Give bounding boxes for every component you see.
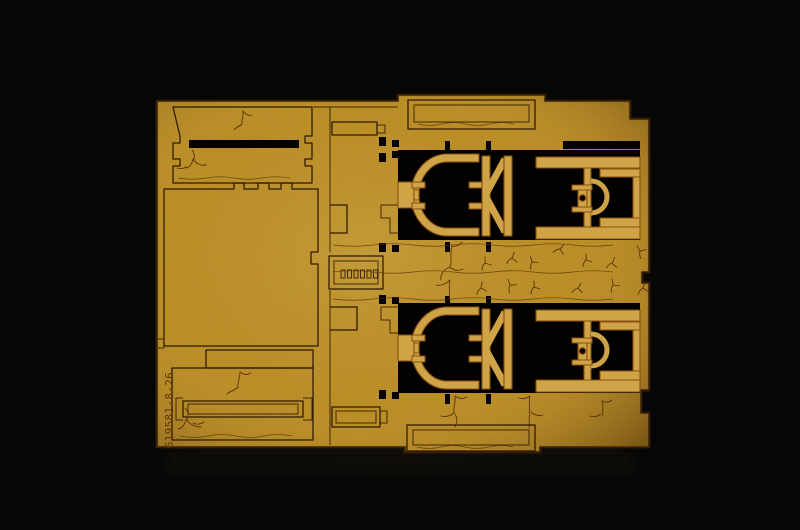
- laser-cut-sheet-photo: 619581-8-26: [0, 0, 800, 530]
- window-assembly-top: [398, 150, 640, 240]
- window-assembly-bottom: [398, 303, 640, 393]
- panel-slot-cutout: [189, 140, 299, 148]
- photo-stage: 619581-8-26: [0, 0, 800, 530]
- engraved-part-number: 619581-8-26: [164, 372, 176, 448]
